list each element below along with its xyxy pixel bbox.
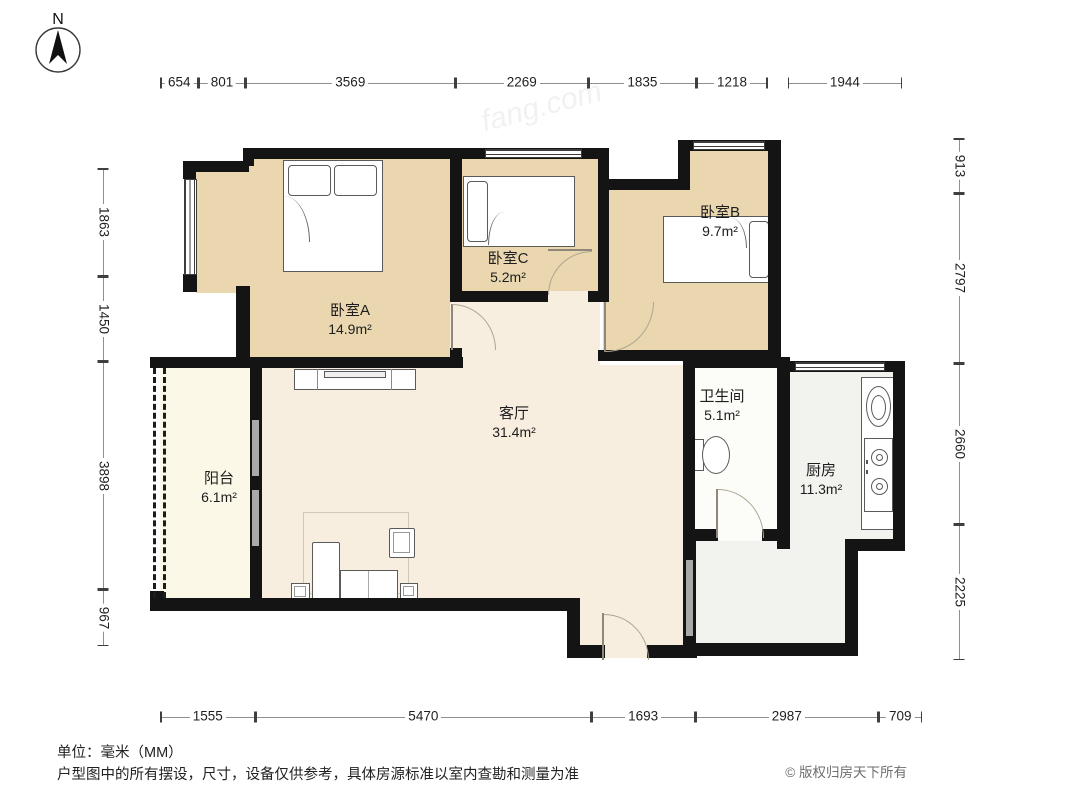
dimension-segment: 801 xyxy=(198,72,245,94)
rgap xyxy=(768,72,788,94)
tick xyxy=(788,78,790,89)
dimension-segment: 1450 xyxy=(92,277,114,362)
room-label-bedroom-c: 卧室C5.2m² xyxy=(488,250,529,286)
tick xyxy=(98,589,109,591)
tick xyxy=(98,168,109,170)
dimension-segment: 1863 xyxy=(92,168,114,277)
dimension-value: 1450 xyxy=(96,301,111,337)
dimension-value: 1944 xyxy=(827,76,863,91)
dimension-segment: 1835 xyxy=(588,72,696,94)
wall xyxy=(150,598,580,611)
tv xyxy=(324,371,386,378)
dimension-segment: 2269 xyxy=(455,72,588,94)
balcony-open-edge xyxy=(153,368,156,598)
room-label-bedroom-b: 卧室B9.7m² xyxy=(700,204,740,240)
dimension-segment: 3898 xyxy=(92,362,114,590)
wall xyxy=(250,357,262,602)
wall xyxy=(183,274,197,292)
rarea: 31.4m² xyxy=(492,424,536,442)
sliding-door xyxy=(252,490,259,546)
pillow xyxy=(467,181,488,242)
tick xyxy=(696,78,698,89)
dimension-value: 3898 xyxy=(96,458,111,494)
tick xyxy=(255,712,257,723)
rname: 客厅 xyxy=(492,405,536,424)
dimension-value: 5470 xyxy=(405,710,441,725)
tick xyxy=(878,712,880,723)
tick xyxy=(695,712,697,723)
tick xyxy=(98,645,109,647)
floor-bedroom-b-upper xyxy=(686,150,774,195)
rarea: 9.7m² xyxy=(700,223,740,241)
rname: 卧室B xyxy=(700,204,740,223)
dimension-value: 2660 xyxy=(952,426,967,462)
rarea: 5.1m² xyxy=(699,407,744,425)
dimension-segment: 2987 xyxy=(695,706,878,728)
wall xyxy=(243,150,254,166)
sofa-seat xyxy=(340,570,398,601)
tick xyxy=(901,78,903,89)
tick xyxy=(588,78,590,89)
sink-basin xyxy=(871,395,886,420)
rname: 阳台 xyxy=(201,470,237,489)
tick xyxy=(954,525,965,527)
wall xyxy=(598,179,690,190)
dimension-value: 709 xyxy=(886,710,915,725)
wall xyxy=(762,529,790,541)
compass-north-icon: N xyxy=(26,4,90,76)
dimension-value: 1863 xyxy=(96,204,111,240)
tick xyxy=(245,78,247,89)
dimension-ruler-top: 65480135692269183512181944 xyxy=(160,72,902,94)
dimension-segment: 967 xyxy=(92,589,114,646)
side-table-top xyxy=(403,586,414,596)
pillow xyxy=(288,165,331,196)
dimension-value: 1835 xyxy=(624,76,660,91)
dimension-value: 1693 xyxy=(625,710,661,725)
tick xyxy=(98,362,109,364)
room-label-balcony: 阳台6.1m² xyxy=(201,470,237,506)
window xyxy=(693,141,765,150)
dimension-segment: 2225 xyxy=(948,525,970,660)
dimension-ruler-bottom: 1555547016932987709 xyxy=(160,706,922,728)
balcony-open-edge xyxy=(163,368,166,598)
dimension-value: 913 xyxy=(952,151,967,180)
tick xyxy=(160,712,162,723)
dimension-value: 2269 xyxy=(504,76,540,91)
window xyxy=(795,362,885,371)
rname: 卧室C xyxy=(488,250,529,269)
side-table-top xyxy=(294,586,306,597)
dimension-value: 1555 xyxy=(190,710,226,725)
sofa-chaise xyxy=(312,542,340,601)
dimension-segment: 5470 xyxy=(255,706,591,728)
dimension-value: 967 xyxy=(96,603,111,632)
pillow xyxy=(749,221,769,278)
wall xyxy=(567,645,607,658)
rarea: 5.2m² xyxy=(488,269,529,287)
sliding-door xyxy=(686,560,693,636)
compass-n-label: N xyxy=(52,11,64,28)
room-label-living: 客厅31.4m² xyxy=(492,405,536,441)
dimension-value: 2225 xyxy=(952,574,967,610)
tick xyxy=(954,193,965,195)
room-label-bath: 卫生间5.1m² xyxy=(699,388,744,424)
burner-center xyxy=(876,454,883,461)
tick xyxy=(921,712,923,723)
wall xyxy=(243,357,463,368)
unit-note: 单位：毫米（MM） xyxy=(57,741,183,762)
dimension-segment: 1218 xyxy=(696,72,768,94)
floor-kitchen-lower xyxy=(693,540,851,650)
rarea: 6.1m² xyxy=(201,489,237,507)
dimension-segment: 1555 xyxy=(160,706,255,728)
pillow xyxy=(334,165,377,196)
dimension-value: 801 xyxy=(208,76,237,91)
stove-knob xyxy=(866,460,868,464)
stove-knob xyxy=(866,470,868,474)
dimension-value: 2797 xyxy=(952,260,967,296)
tick xyxy=(954,363,965,365)
tick xyxy=(954,138,965,140)
rname: 卫生间 xyxy=(699,388,744,407)
dimension-ruler-left: 186314503898967 xyxy=(92,168,114,646)
dimension-value: 1218 xyxy=(714,76,750,91)
cabinet-divider xyxy=(317,369,318,390)
dimension-value: 2987 xyxy=(769,710,805,725)
window xyxy=(485,149,582,158)
room-label-kitchen: 厨房11.3m² xyxy=(800,462,843,498)
sofa-cushion-line xyxy=(368,571,369,600)
rname: 厨房 xyxy=(800,462,843,481)
wall xyxy=(845,539,858,655)
tick xyxy=(98,277,109,279)
dimension-segment: 3569 xyxy=(245,72,455,94)
tick xyxy=(455,78,457,89)
dimension-value: 654 xyxy=(165,76,194,91)
wall xyxy=(777,357,790,549)
rname: 卧室A xyxy=(328,302,372,321)
wall xyxy=(683,529,718,541)
room-label-bedroom-a: 卧室A14.9m² xyxy=(328,302,372,338)
wall xyxy=(236,286,250,368)
tick xyxy=(591,712,593,723)
wall xyxy=(243,148,463,159)
wall xyxy=(450,148,462,302)
wall xyxy=(683,357,790,368)
window xyxy=(184,179,197,275)
sliding-door xyxy=(252,420,259,476)
disclaimer: 户型图中的所有摆设，尺寸，设备仅供参考，具体房源标准以室内查勘和测量为准 xyxy=(57,763,579,784)
wall xyxy=(690,643,858,656)
copyright: © 版权归房天下所有 xyxy=(735,761,907,781)
tick xyxy=(160,78,162,89)
dimension-segment: 709 xyxy=(878,706,922,728)
tick xyxy=(766,78,768,89)
tick xyxy=(198,78,200,89)
dimension-segment: 654 xyxy=(160,72,198,94)
rarea: 11.3m² xyxy=(800,481,843,499)
toilet-bowl xyxy=(702,436,730,474)
dimension-segment: 2660 xyxy=(948,363,970,525)
wall xyxy=(768,140,781,362)
wall xyxy=(893,361,905,551)
wall xyxy=(450,291,550,302)
rarea: 14.9m² xyxy=(328,321,372,339)
tick xyxy=(954,659,965,661)
polygon xyxy=(49,30,67,64)
dimension-segment: 2797 xyxy=(948,193,970,363)
dimension-ruler-right: 913279726602225 xyxy=(948,138,970,660)
cabinet-divider xyxy=(391,369,392,390)
armchair-cushion xyxy=(393,532,410,553)
floor-plan-page: N fang.com xyxy=(0,0,1066,800)
dimension-segment: 913 xyxy=(948,138,970,193)
dimension-segment: 1693 xyxy=(591,706,695,728)
dimension-segment: 1944 xyxy=(788,72,902,94)
burner-center xyxy=(876,483,883,490)
dimension-value: 3569 xyxy=(332,76,368,91)
wall xyxy=(183,161,196,179)
wall xyxy=(683,357,695,549)
wall xyxy=(598,148,609,302)
